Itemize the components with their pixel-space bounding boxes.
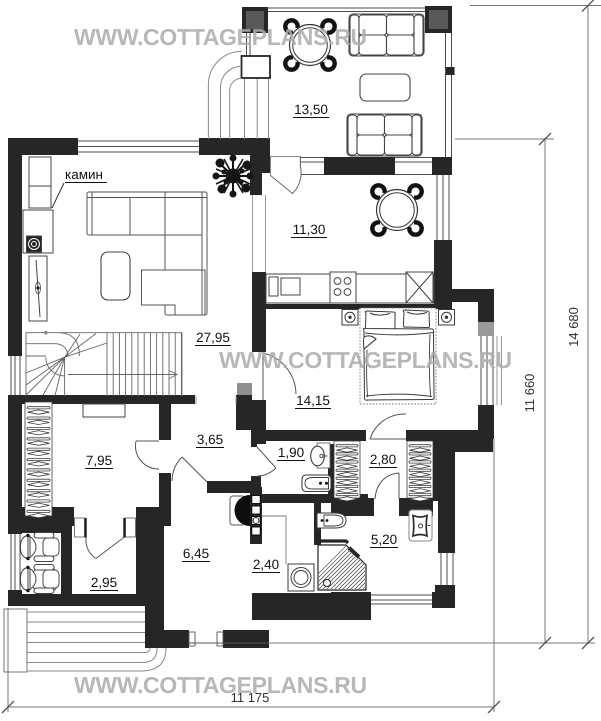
svg-text:2,95: 2,95 [91,575,117,590]
svg-text:3,65: 3,65 [197,432,223,447]
svg-text:WWW.COTTAGEPLANS.RU: WWW.COTTAGEPLANS.RU [74,24,367,50]
svg-text:2,80: 2,80 [370,452,396,467]
svg-text:WWW.COTTAGEPLANS.RU: WWW.COTTAGEPLANS.RU [74,672,367,698]
svg-text:5,20: 5,20 [371,532,397,547]
svg-text:11 660: 11 660 [522,374,537,413]
svg-text:14 680: 14 680 [566,307,581,347]
svg-text:6,45: 6,45 [183,546,209,561]
svg-text:27,95: 27,95 [196,330,230,345]
svg-text:2,40: 2,40 [253,557,279,572]
svg-text:13,50: 13,50 [294,102,328,117]
svg-text:7,95: 7,95 [86,453,112,468]
svg-text:11,30: 11,30 [293,222,326,237]
svg-text:1,90: 1,90 [278,445,304,460]
svg-text:14,15: 14,15 [296,393,330,408]
svg-text:WWW.COTTAGEPLANS.RU: WWW.COTTAGEPLANS.RU [219,347,512,373]
svg-text:камин: камин [65,167,103,182]
